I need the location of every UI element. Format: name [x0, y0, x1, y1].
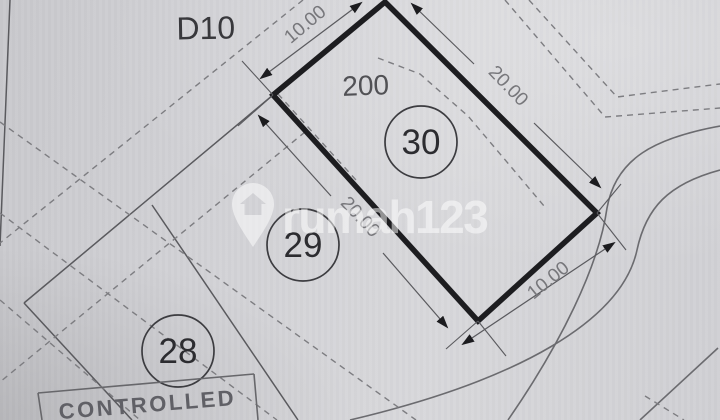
block-label: D10: [176, 9, 235, 46]
watermark-brand-text: rumah123: [282, 191, 487, 243]
lot-28-number: 28: [159, 332, 198, 371]
lot-30-area-label: 200: [342, 69, 390, 102]
site-plan-canvas: 10.00 20.00 20.00 10.00 D10 200 30 29 28…: [0, 0, 720, 420]
thin-boundary-lines: [0, 0, 298, 420]
controlled-stamp-text: CONTROLLED: [58, 385, 237, 420]
lot-28-marker: 28: [142, 315, 214, 387]
lot-30-number: 30: [402, 123, 441, 162]
road-edge-curves: [350, 126, 720, 420]
dim-label-width-bottom: 10.00: [523, 258, 573, 304]
dim-label-length-right: 20.00: [484, 62, 532, 111]
watermark: rumah123: [232, 183, 487, 247]
scanned-site-plan-page: 10.00 20.00 20.00 10.00 D10 200 30 29 28…: [0, 0, 720, 420]
dim-label-width-top: 10.00: [281, 1, 331, 48]
lot-30-marker: 30: [385, 106, 457, 178]
